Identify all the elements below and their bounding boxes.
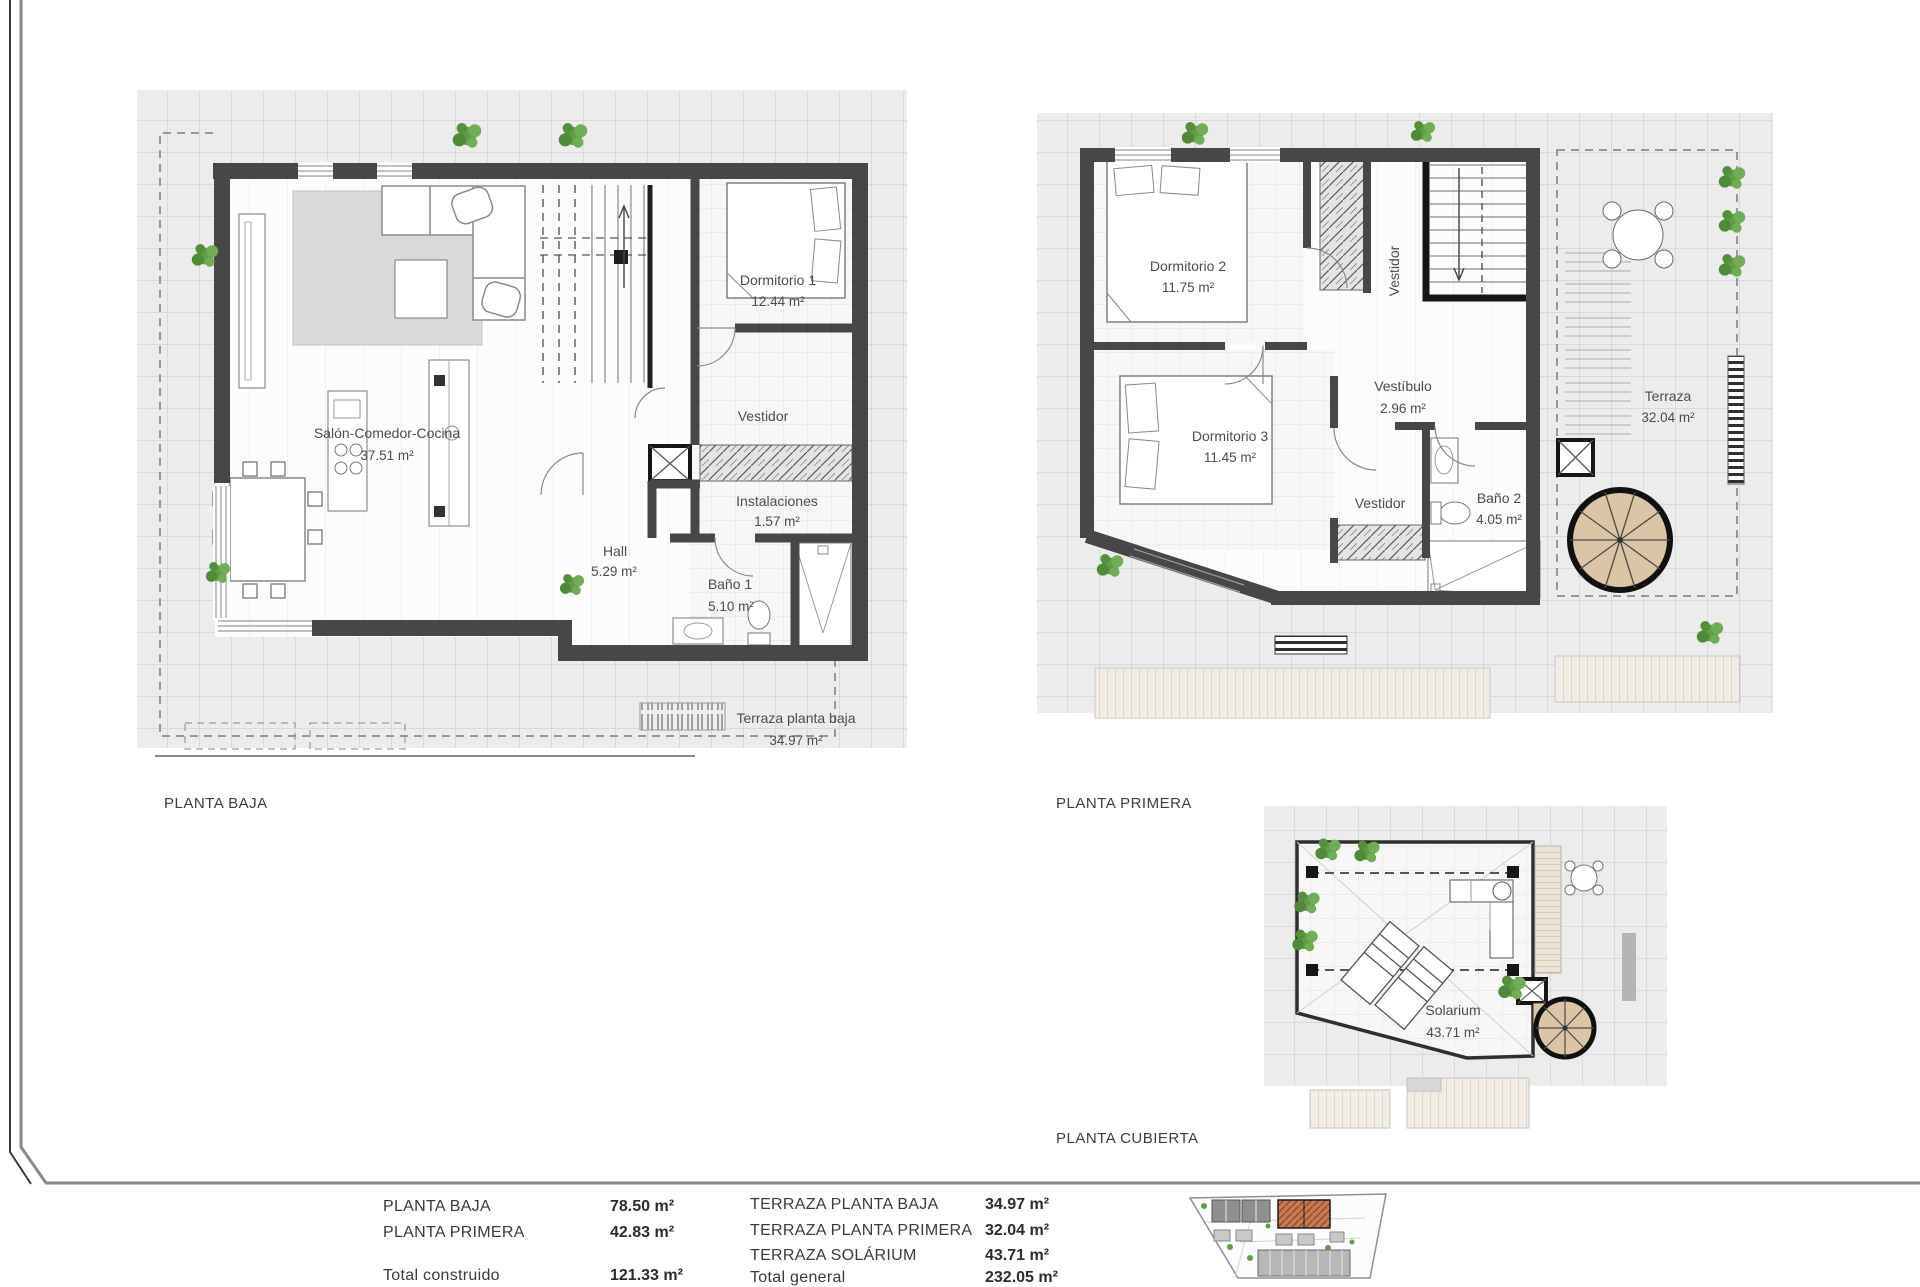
- pergola-grille: [1728, 356, 1744, 484]
- wardrobe-vestidor-horizontal: [1335, 525, 1425, 560]
- room-area-vestibulo: 2.96 m²: [1380, 401, 1426, 416]
- spiral-staircase: [1533, 999, 1594, 1057]
- summary-value: 32.04 m²: [985, 1222, 1049, 1240]
- room-label-terraza: Terraza: [1645, 388, 1692, 404]
- room-label-bano1: Baño 1: [708, 576, 753, 592]
- room-label-terraza-baja: Terraza planta baja: [736, 710, 855, 726]
- room-label-vestidor-h: Vestidor: [1355, 495, 1406, 511]
- room-label-solarium: Solarium: [1425, 1002, 1480, 1018]
- room-area-terraza-baja: 34.97 m²: [769, 733, 823, 748]
- room-area-hall: 5.29 m²: [591, 564, 637, 579]
- summary-label: Total construido: [383, 1267, 500, 1285]
- summary-label: PLANTA BAJA: [383, 1198, 491, 1216]
- summary-value: 78.50 m²: [610, 1198, 674, 1216]
- deck-right: [1555, 656, 1740, 702]
- summary-label: PLANTA PRIMERA: [383, 1224, 525, 1242]
- duct-box: [650, 446, 690, 481]
- room-label-salon: Salón-Comedor-Cocina: [314, 425, 461, 441]
- room-area-dormitorio1: 12.44 m²: [751, 294, 805, 309]
- kitchen-counter: [429, 360, 469, 526]
- room-area-bano1: 5.10 m²: [708, 599, 754, 614]
- room-label-dormitorio2: Dormitorio 2: [1150, 258, 1226, 274]
- floor-plan-planta-baja: Salón-Comedor-Cocina 37.51 m² Dormitorio…: [135, 88, 910, 788]
- tv-console: [239, 214, 265, 388]
- summary-value: 43.71 m²: [985, 1247, 1049, 1265]
- duct-box: [1558, 440, 1593, 475]
- room-label-instalaciones: Instalaciones: [736, 493, 818, 509]
- summary-value: 232.05 m²: [985, 1269, 1058, 1287]
- site-key-plan: [1180, 1192, 1415, 1280]
- summary-label: TERRAZA SOLÁRIUM: [750, 1247, 917, 1265]
- plan-title-planta-cubierta: PLANTA CUBIERTA: [1056, 1130, 1199, 1147]
- bed-dormitorio2: [1107, 160, 1247, 322]
- summary-label: Total general: [750, 1269, 846, 1287]
- terrace-table: [1613, 210, 1663, 260]
- room-label-bano2: Baño 2: [1477, 490, 1522, 506]
- room-label-dormitorio3: Dormitorio 3: [1192, 428, 1268, 444]
- coffee-table: [395, 260, 447, 318]
- gray-planter-bar: [1622, 933, 1636, 1001]
- room-label-hall: Hall: [603, 543, 627, 559]
- room-label-vestidor: Vestidor: [738, 408, 789, 424]
- wardrobe-vestidor: [700, 445, 852, 481]
- room-label-dormitorio1: Dormitorio 1: [740, 272, 816, 288]
- room-area-dormitorio2: 11.75 m²: [1162, 280, 1215, 295]
- spiral-staircase: [1570, 490, 1670, 590]
- room-area-terraza: 32.04 m²: [1641, 410, 1695, 425]
- deck-lower: [1095, 668, 1490, 718]
- room-area-solarium: 43.71 m²: [1426, 1025, 1480, 1040]
- plan-title-planta-primera: PLANTA PRIMERA: [1056, 795, 1192, 812]
- summary-value: 34.97 m²: [985, 1196, 1049, 1214]
- wardrobe-vestidor-vertical: [1320, 152, 1367, 290]
- summary-value: 121.33 m²: [610, 1267, 683, 1285]
- floor-plan-planta-cubierta: Solarium 43.71 m²: [1262, 798, 1682, 1150]
- room-area-instalaciones: 1.57 m²: [754, 514, 800, 529]
- floor-plan-planta-primera: Dormitorio 2 11.75 m² Vestidor Vestíbulo…: [1035, 88, 1780, 778]
- floor-grille: [1275, 636, 1347, 654]
- stair-roof-strip: [1535, 846, 1561, 973]
- terrace-table: [1565, 861, 1603, 895]
- room-label-vestidor-v: Vestidor: [1386, 245, 1402, 296]
- summary-value: 42.83 m²: [610, 1224, 674, 1242]
- room-area-salon: 37.51 m²: [360, 448, 414, 463]
- summary-label: TERRAZA PLANTA BAJA: [750, 1196, 939, 1214]
- summary-label: TERRAZA PLANTA PRIMERA: [750, 1222, 972, 1240]
- room-label-vestibulo: Vestíbulo: [1374, 378, 1432, 394]
- plan-title-planta-baja: PLANTA BAJA: [164, 795, 268, 812]
- room-area-dormitorio3: 11.45 m²: [1204, 450, 1257, 465]
- room-area-bano2: 4.05 m²: [1476, 512, 1522, 527]
